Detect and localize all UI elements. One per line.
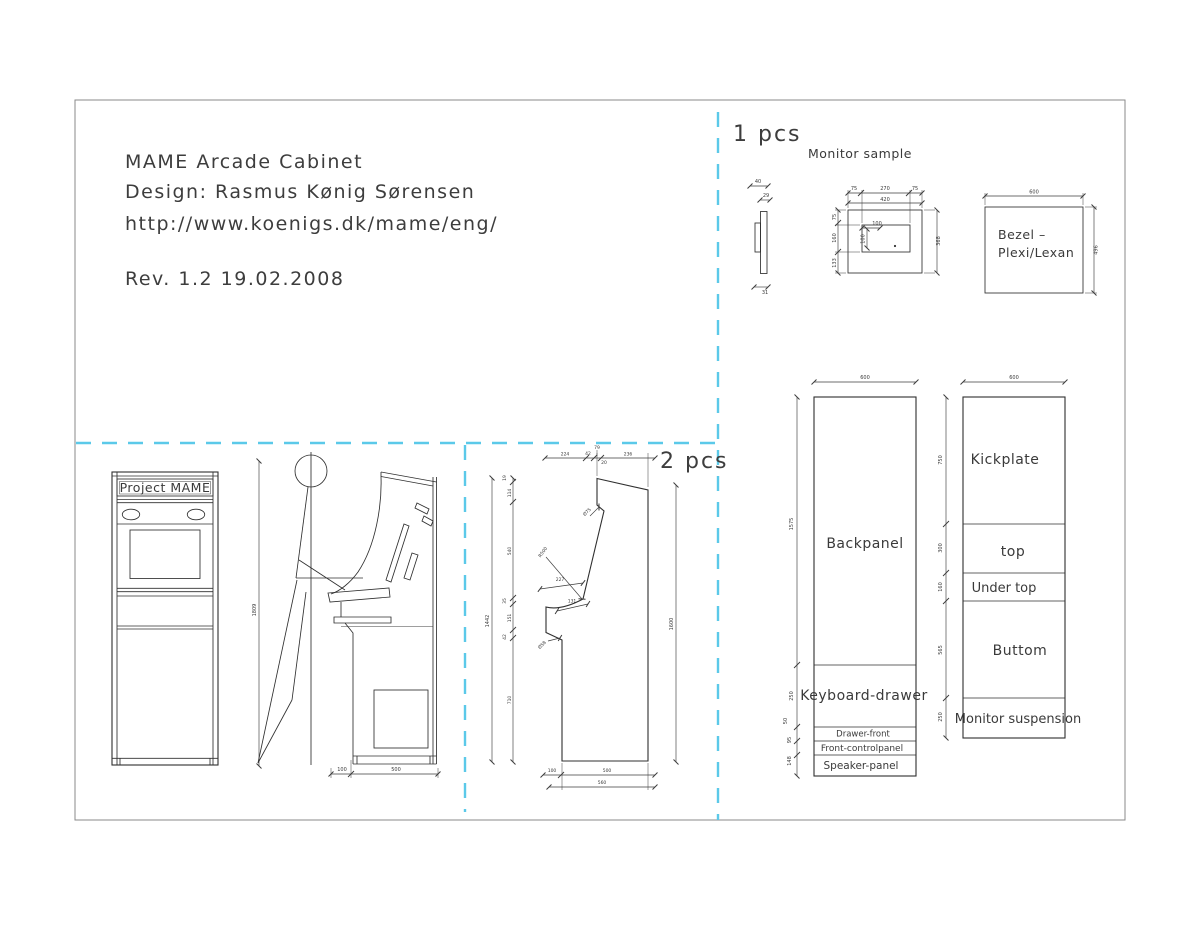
base-front-edge [345,623,353,756]
sp-dim-42: 42 [585,451,591,457]
sp-dim-710: 710 [507,696,513,705]
dim-75-left: 75 [851,186,857,192]
side-panel-drawing: 224 42 79 20 236 1442 19 114 540 35 151 … [485,445,676,790]
monitor-rail [404,553,418,580]
control-panel [328,588,390,602]
keyboard-drawer-label: Keyboard-drawer [800,688,927,704]
dim-565: 565 [938,645,944,655]
monitor-suspension-label: Monitor suspension [955,712,1081,727]
front-controlpanel-label: Front-controlpanel [821,744,903,754]
subwoofer-box [374,690,428,748]
dim-148: 148 [787,756,793,766]
drawing-sheet: MAME Arcade Cabinet Design: Rasmus Kønig… [0,0,1200,928]
dim-300: 300 [938,543,944,553]
callout-131: 131 [568,599,577,605]
sp-dim-42b: 42 [502,634,508,640]
technical-drawing: MAME Arcade Cabinet Design: Rasmus Kønig… [0,0,1200,928]
speaker-panel-label: Speaker-panel [824,760,899,772]
drawer-front-label: Drawer-front [836,730,890,740]
monitor-bracket [422,516,433,526]
mount-hole [894,245,896,247]
dim-270: 270 [880,186,890,192]
two-pcs-label: 2 pcs [660,449,729,474]
right-col-width-dim: 600 [1009,375,1019,381]
floor-dim-500: 500 [391,767,401,773]
sp-bottom-560: 560 [598,780,607,786]
sp-bottom-500: 500 [603,768,612,774]
panel-column-left: Backpanel Keyboard-drawer Drawer-front F… [783,375,928,776]
monitor-screen [130,530,200,579]
monitor-profile-mount [755,223,761,252]
profile-dim-31: 31 [762,290,768,296]
side-view-drawing: 100 500 [328,472,438,778]
revision-line: Rev. 1.2 19.02.2008 [125,268,344,290]
under-top-label: Under top [972,581,1037,596]
drawing-title: MAME Arcade Cabinet [125,151,363,173]
overall-height-dim: 1809 [252,604,258,617]
floor-dim-100: 100 [337,767,347,773]
dim-left-160: 160 [832,233,838,243]
callout-d75: Ø75 [581,506,593,518]
sp-dim-19: 19 [502,475,508,481]
monitor-profile-drawing: 40 29 31 [750,179,770,296]
bezel-height-dim: 496 [1094,245,1100,255]
sp-dim-35: 35 [502,598,508,604]
designer-line: Design: Rasmus Kønig Sørensen [125,181,475,203]
monitor-cutout [862,225,910,252]
callout-r500: R500 [537,546,549,559]
url-line: http://www.koenigs.dk/mame/eng/ [125,213,498,235]
side-panel-outline [546,479,648,762]
bezel-drawing: Bezel – Plexi/Lexan 600 496 [985,190,1100,294]
sp-dim-540: 540 [507,547,513,556]
profile-dim-40: 40 [755,179,761,185]
front-view-drawing: Project MAME [112,472,218,765]
bezel-label-line2: Plexi/Lexan [998,245,1074,260]
sp-dim-151: 151 [507,614,513,623]
monitor-sample-drawing: Monitor sample 75 270 75 420 75 160 133 … [808,146,942,273]
dim-368: 368 [936,236,942,246]
bezel-label-line1: Bezel – [998,227,1046,242]
title-block: MAME Arcade Cabinet Design: Rasmus Kønig… [125,151,498,290]
callout-227: 227 [556,577,565,583]
dim-left-133: 133 [832,258,838,268]
speaker-left [122,509,139,520]
left-col-width-dim: 600 [860,375,870,381]
kickplate-label: Kickplate [971,452,1040,468]
dim-inner-100w: 100 [872,221,882,227]
dim-750: 750 [938,455,944,465]
dim-420: 420 [880,197,890,203]
sp-dim-236: 236 [624,452,633,458]
sp-dim-1600: 1600 [669,618,675,631]
backpanel-stack-outline [814,397,916,776]
kickplate-stack-outline [963,397,1065,738]
speaker-right [187,509,204,520]
dim-250b: 250 [938,712,944,722]
callout-d58: Ø58 [536,639,548,651]
monitor-panel-outline [848,210,922,273]
dim-95: 95 [787,737,793,743]
dim-inner-100h: 100 [861,234,867,244]
top-label: top [1001,544,1025,560]
one-pcs-label: 1 pcs [733,122,802,147]
cabinet-outline [112,472,218,765]
sp-bottom-100: 100 [548,768,557,774]
sp-dim-224: 224 [561,452,570,458]
dim-250: 250 [789,691,795,701]
marquee-text: Project MAME [120,480,211,495]
dim-left-75: 75 [832,214,838,220]
dim-160: 160 [938,582,944,592]
backpanel-label: Backpanel [826,536,903,552]
dim-1575: 1575 [789,518,795,531]
monitor-profile-panel [761,212,768,274]
panel-column-right: Kickplate top Under top Buttom Monitor s… [938,375,1081,738]
sp-dim-114: 114 [507,489,513,498]
front-curve [331,477,381,595]
dim-50: 50 [783,718,789,724]
person-figure: 1809 [252,452,363,766]
keyboard-shelf [334,617,391,623]
sp-dim-20: 20 [601,460,607,466]
buttom-label: Buttom [993,643,1048,659]
marquee-bracket [415,503,429,514]
bezel-width-dim: 600 [1029,190,1039,196]
profile-dim-29: 29 [763,193,769,199]
dim-75-right: 75 [912,186,918,192]
sp-dim-1442: 1442 [485,615,491,628]
monitor-sample-title: Monitor sample [808,146,912,161]
